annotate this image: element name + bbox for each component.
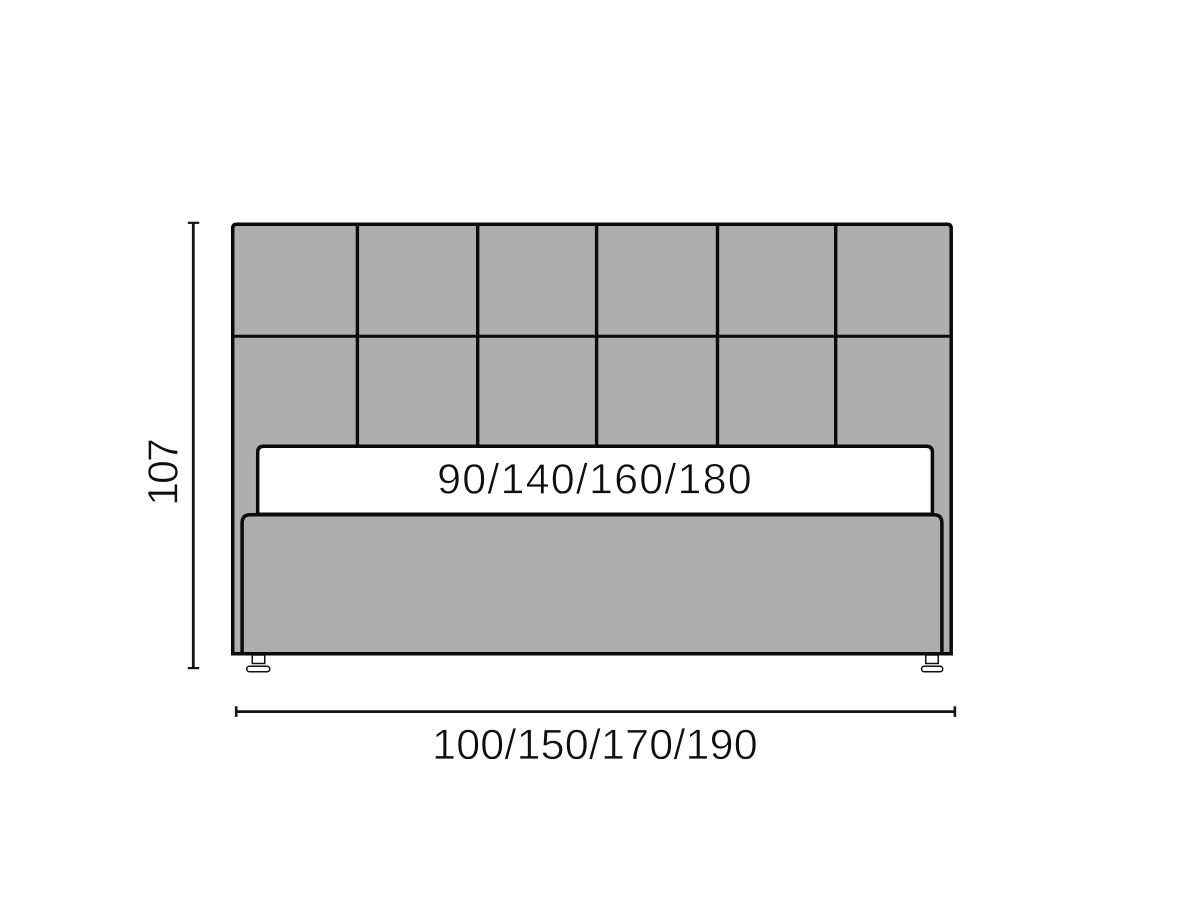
svg-text:107: 107: [139, 440, 187, 506]
svg-text:90/140/160/180: 90/140/160/180: [437, 456, 753, 504]
svg-text:100/150/170/190: 100/150/170/190: [432, 721, 758, 769]
